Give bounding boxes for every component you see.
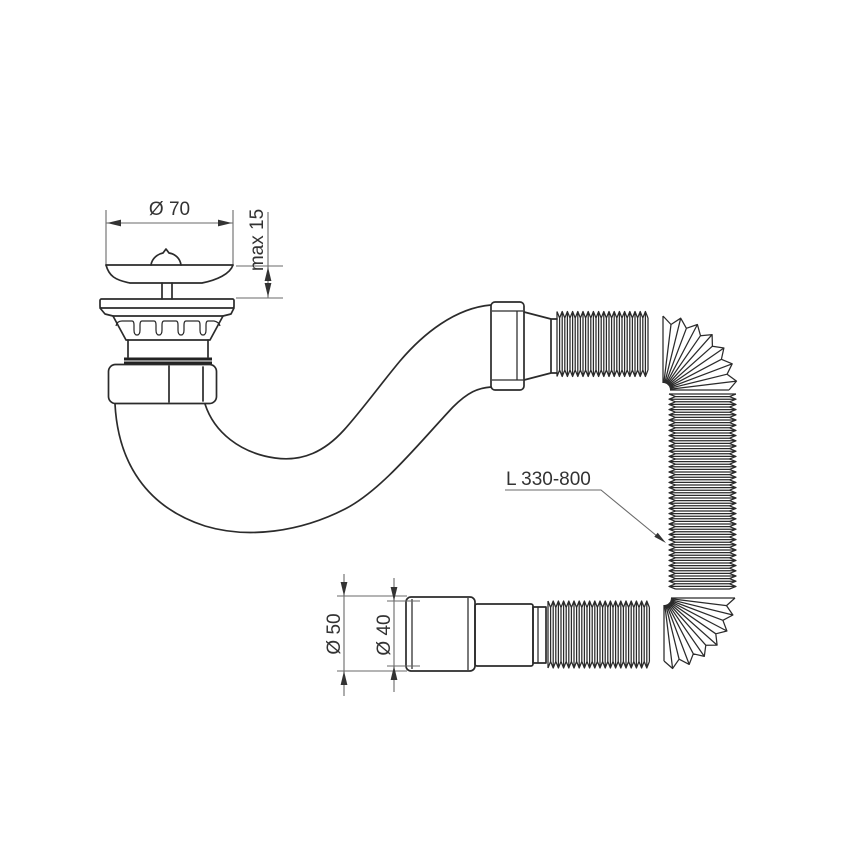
arrow-up-icon	[341, 671, 348, 685]
label-text: L 330-800	[506, 469, 591, 490]
arrow-down-icon	[341, 582, 348, 596]
drain-plug-assembly	[100, 249, 234, 404]
connector-small-cylinder	[475, 604, 533, 666]
dimension-label: max 15	[247, 209, 268, 271]
hex-union-fitting	[491, 302, 557, 390]
hose-length-label: L 330-800	[505, 469, 666, 543]
arrow-left-icon	[107, 220, 121, 227]
dimension-label: Ø 50	[324, 613, 345, 654]
fitting-cone	[524, 312, 557, 380]
leader-arrow-icon	[654, 533, 666, 543]
connector-large-cylinder	[406, 597, 475, 671]
plug-knob	[151, 249, 181, 265]
technical-drawing-page: Ø 70 max 15	[0, 0, 850, 850]
compression-nut	[109, 365, 217, 404]
outlet-reducer-connector	[406, 597, 546, 671]
arrow-up-icon	[391, 666, 398, 680]
drain-kit-drawing: Ø 70 max 15	[0, 0, 850, 850]
dimension-label: Ø 70	[149, 199, 190, 220]
leader-line	[505, 490, 663, 541]
hose-horizontal-top-section	[557, 312, 648, 377]
arrow-right-icon	[218, 220, 232, 227]
strainer-flange	[100, 299, 234, 308]
dimension-cap-height: max 15	[236, 209, 283, 298]
flange-underside	[100, 308, 234, 316]
curved-tailpipe	[115, 305, 491, 532]
plug-cap-dish	[106, 265, 233, 283]
hex-nut-facets	[492, 311, 523, 380]
o-ring-washer	[124, 359, 212, 363]
dimension-outlet-40: Ø 40	[374, 578, 420, 692]
dimension-label: Ø 40	[374, 614, 395, 655]
arrow-down-icon	[265, 283, 272, 297]
hose-bend-top-right	[663, 316, 737, 390]
strainer-neck	[128, 340, 208, 357]
hose-horizontal-bottom-section	[548, 601, 649, 668]
dimension-strainer-diameter: Ø 70	[106, 199, 233, 264]
connector-ring	[533, 607, 546, 663]
hose-vertical-section	[669, 394, 736, 589]
tailpipe-outer-wall	[115, 387, 491, 532]
strainer-castellation	[116, 321, 220, 335]
hose-bend-bottom-left	[664, 598, 735, 669]
hex-nut-body	[491, 302, 524, 390]
connector-wall-lines	[412, 598, 468, 670]
tailpipe-inner-wall	[205, 305, 491, 459]
compression-nut-facets	[169, 366, 203, 402]
arrow-down-icon	[391, 587, 398, 601]
plug-stem	[162, 283, 172, 299]
